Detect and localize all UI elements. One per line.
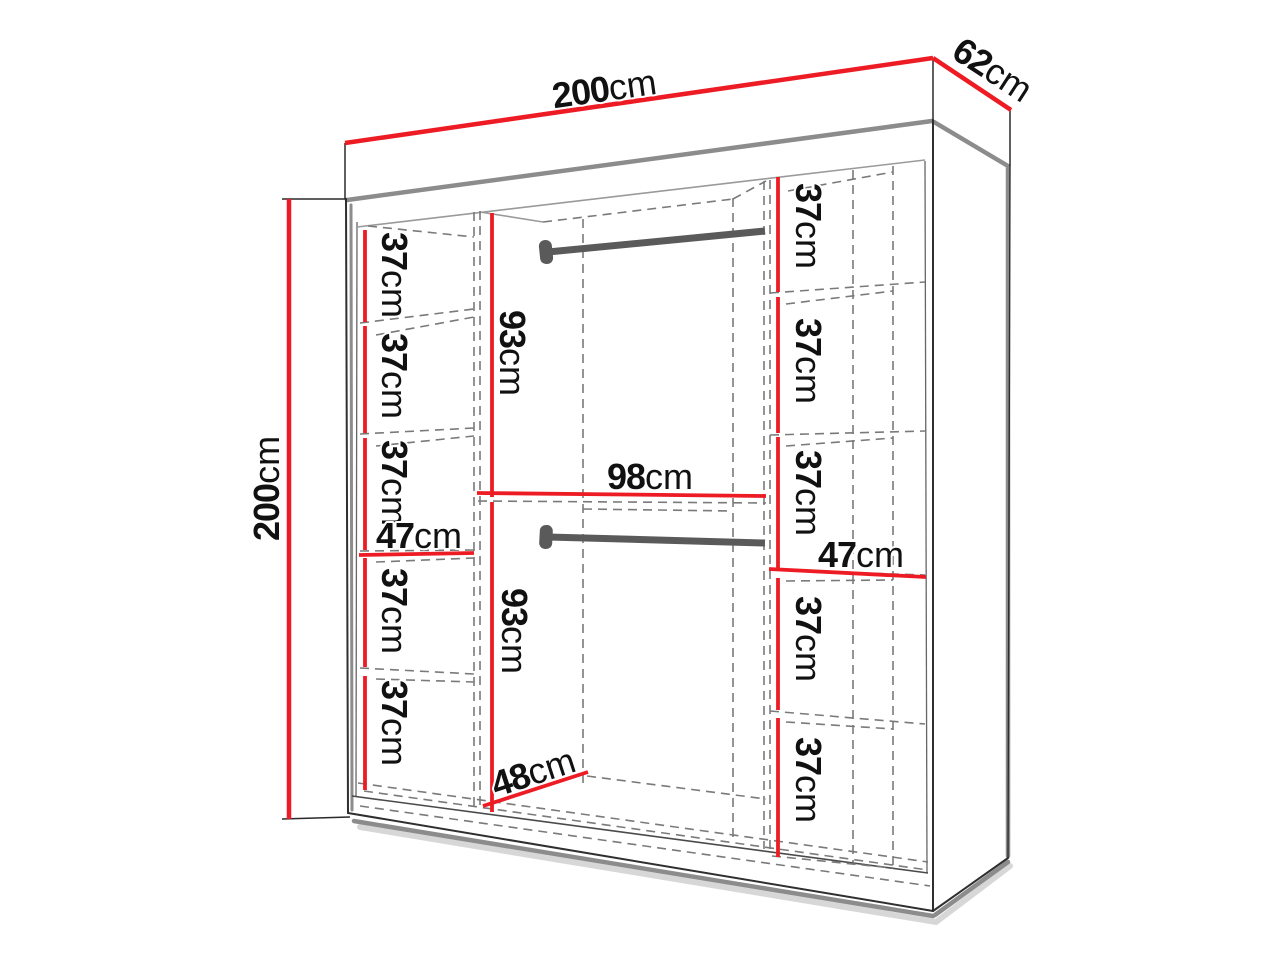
label-middle-depth-48cm: 48cm xyxy=(486,739,581,805)
middle-floor-back-edge xyxy=(587,776,766,799)
shelf-line xyxy=(770,282,925,293)
label-right-shelf-5: 37cm xyxy=(788,737,829,823)
label-left-shelf-3: 37cm xyxy=(374,440,415,526)
height-tick-bottom xyxy=(282,817,350,819)
label-right-shelf-1: 37cm xyxy=(788,183,829,269)
front-left-edge xyxy=(346,199,348,813)
right-top-shadow xyxy=(934,122,1008,166)
middle-ceiling-depth-edge xyxy=(733,181,766,199)
left-wall-shadow xyxy=(351,205,352,810)
bottom-right-shadow xyxy=(935,862,1008,915)
middle-divider-back-edge xyxy=(583,509,733,511)
label-left-shelf-2: 37cm xyxy=(374,333,415,419)
label-left-width-47cm: 47cm xyxy=(376,515,462,556)
label-right-shelf-4: 37cm xyxy=(788,596,829,682)
wardrobe-dimension-diagram: 200cm 62cm 200cm 37cm 37cm 37cm 37cm 37c… xyxy=(0,0,1280,960)
shelf-line xyxy=(786,291,893,304)
label-middle-upper-93cm: 93cm xyxy=(492,310,533,396)
label-right-shelf-3: 37cm xyxy=(788,450,829,536)
shelf-line xyxy=(360,428,474,434)
right-inner-wall-edge xyxy=(925,161,927,873)
shelf-line xyxy=(786,438,893,446)
bottom-rod-end-cap xyxy=(539,525,553,550)
label-height-200cm: 200cm xyxy=(246,436,287,541)
top-rod-end-cap xyxy=(538,239,553,264)
label-right-width-47cm: 47cm xyxy=(818,534,904,575)
label-left-shelf-5: 37cm xyxy=(374,680,415,766)
shelf-line xyxy=(786,580,893,581)
label-middle-lower-93cm: 93cm xyxy=(494,588,535,674)
shelf-line xyxy=(786,722,893,729)
ceiling-depth-edge xyxy=(480,212,543,222)
shelf-line xyxy=(770,431,925,435)
front-top-shadow xyxy=(347,121,932,200)
shelf-line xyxy=(360,668,474,674)
bottom-hanging-rod xyxy=(548,537,765,543)
label-width-200cm: 200cm xyxy=(549,61,659,116)
interior-ceiling-edge xyxy=(357,160,925,227)
middle-divider-front-edge xyxy=(478,501,766,503)
label-right-shelf-2: 37cm xyxy=(788,318,829,404)
shelf-line xyxy=(376,558,474,562)
left-inner-wall-edge xyxy=(356,222,357,797)
right-face-bottom-edge xyxy=(933,858,1008,911)
floor-hidden-edge xyxy=(358,783,928,862)
label-left-shelf-4: 37cm xyxy=(374,568,415,654)
diagram-svg: 200cm 62cm 200cm 37cm 37cm 37cm 37cm 37c… xyxy=(0,0,1280,960)
label-left-shelf-1: 37cm xyxy=(374,232,415,318)
label-middle-width-98cm: 98cm xyxy=(607,456,693,497)
